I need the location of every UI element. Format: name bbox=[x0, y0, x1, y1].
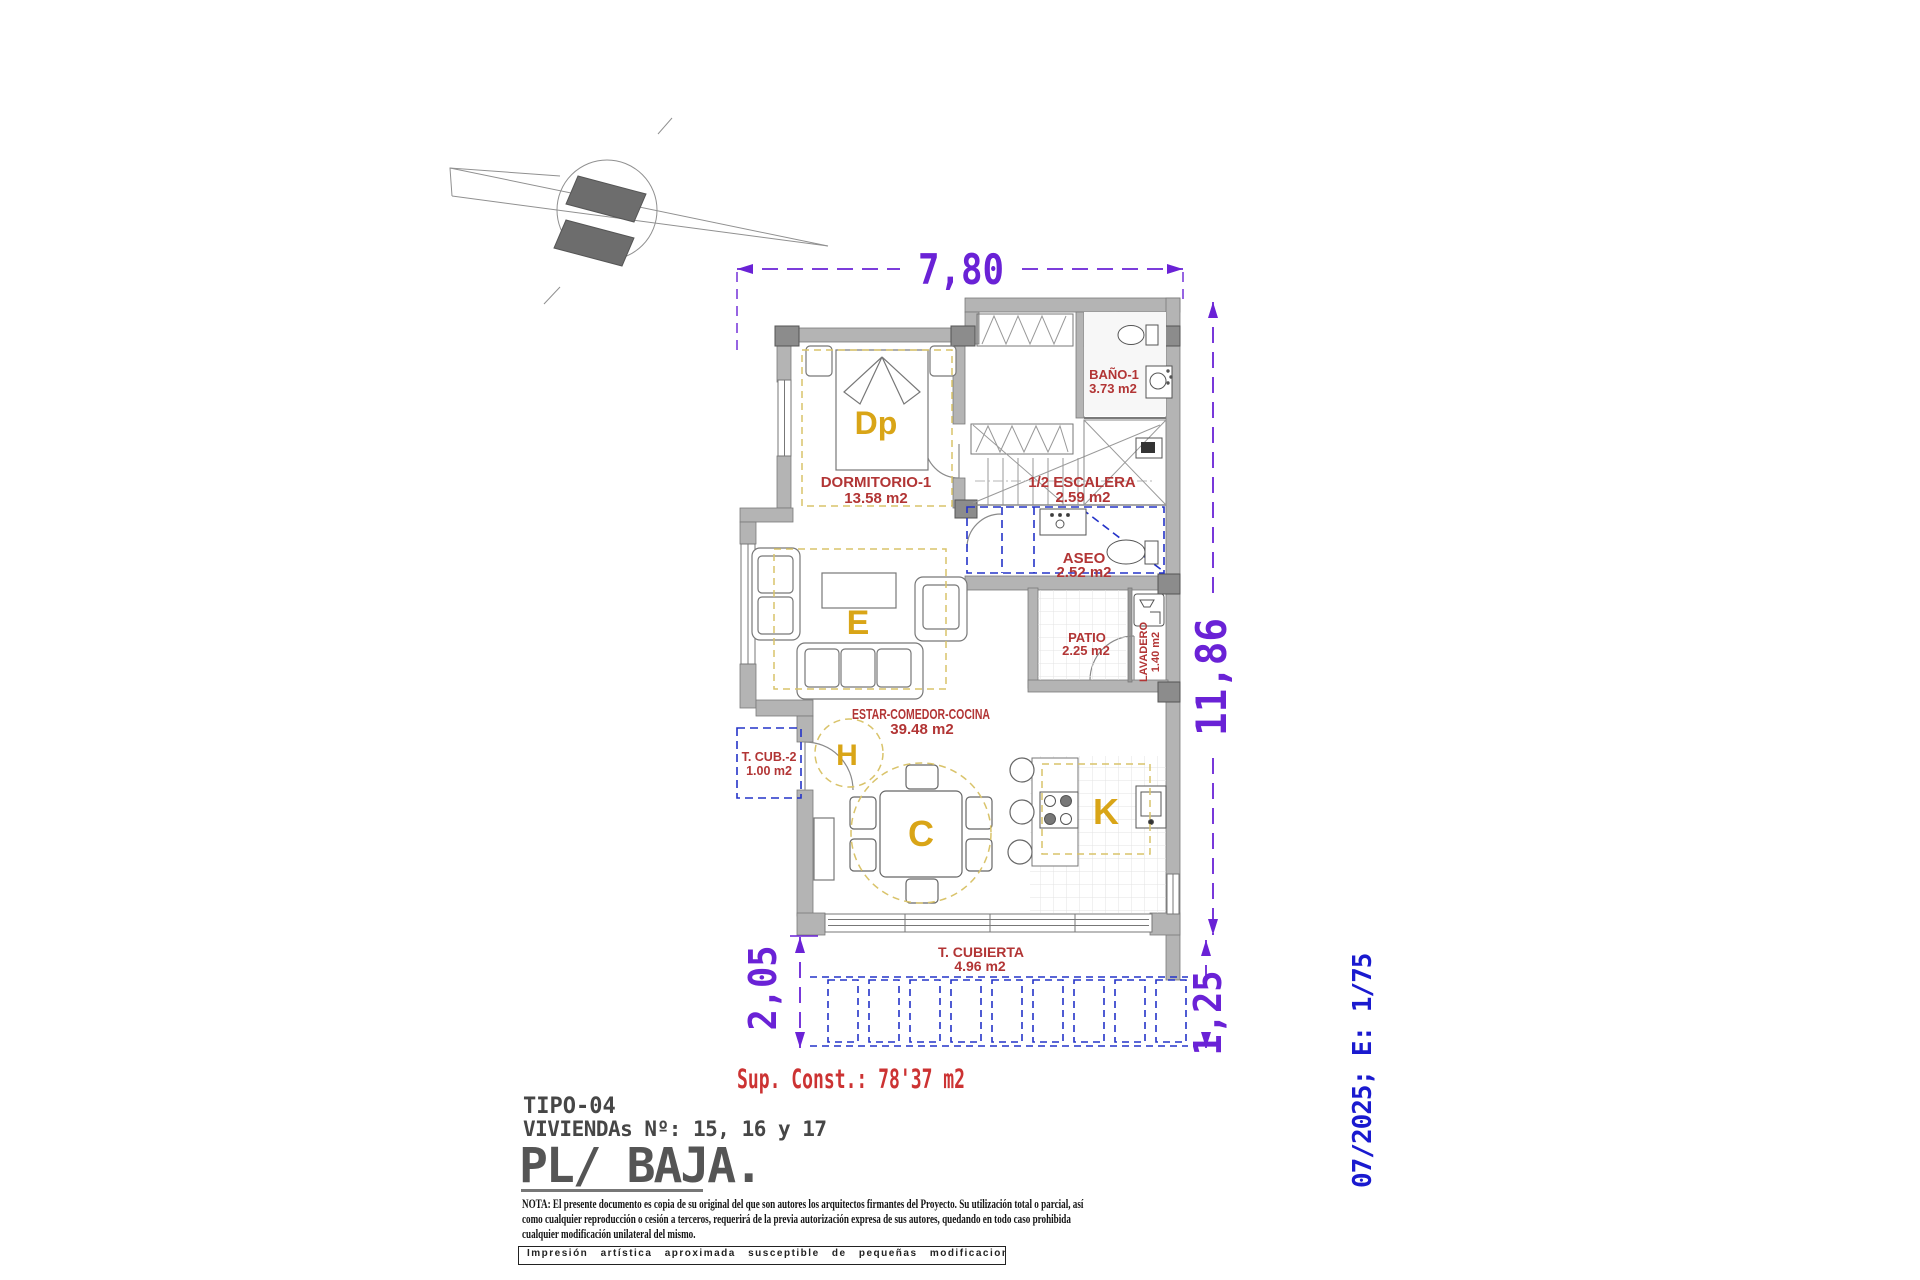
zone-k: K bbox=[1093, 791, 1119, 832]
nota-line-2: como cualquier reproducción o cesión a t… bbox=[522, 1211, 1083, 1226]
nota-line-3: cualquier modificación unilateral del mi… bbox=[522, 1226, 1083, 1241]
aseo-toilet-icon bbox=[1107, 540, 1158, 564]
stove-icon bbox=[1040, 792, 1078, 828]
toilet-icon bbox=[1118, 325, 1158, 345]
kitchen-sink-icon bbox=[1136, 786, 1166, 828]
coffee-table bbox=[822, 573, 896, 608]
armchair bbox=[915, 577, 967, 641]
sofa-two-seat bbox=[752, 548, 800, 640]
title-underline bbox=[521, 1189, 703, 1192]
sofa-three-seat bbox=[797, 643, 923, 699]
revision-date-scale: 07/2025; E: 1/75 bbox=[1348, 954, 1378, 1188]
label-patio-area: 2.25 m2 bbox=[1062, 643, 1110, 658]
label-estar-area: 39.48 m2 bbox=[890, 721, 953, 738]
label-aseo-area: 2.52 m2 bbox=[1056, 564, 1111, 581]
nota-block: NOTA: El presente documento es copia de … bbox=[522, 1196, 1324, 1241]
zone-dp: Dp bbox=[855, 405, 898, 441]
zone-e: E bbox=[847, 604, 870, 642]
label-lavadero-area: 1.40 m2 bbox=[1150, 632, 1162, 672]
dim-right: 11,86 bbox=[1187, 618, 1236, 736]
north-compass-icon bbox=[450, 118, 828, 304]
impresion-note: Impresión artística aproximada susceptib… bbox=[518, 1246, 1006, 1265]
washbasin-icon bbox=[1146, 366, 1172, 398]
dim-top: 7,80 bbox=[918, 245, 1004, 294]
label-dormitorio: DORMITORIO-1 bbox=[821, 474, 932, 491]
sup-const-label: Sup. Const.: 78'37 m2 bbox=[737, 1064, 965, 1095]
floor-plan-drawing: 7,80 11,86 2,05 1,25 DORMITORIO-1 13.58 … bbox=[0, 0, 1920, 1280]
label-tcubierta-area: 4.96 m2 bbox=[954, 958, 1006, 974]
label-bano: BAÑO-1 bbox=[1089, 367, 1139, 382]
title-planta: PL/ BAJA. bbox=[519, 1138, 761, 1194]
label-tcub2: T. CUB.-2 bbox=[742, 750, 797, 764]
aseo-basin-icon bbox=[1040, 509, 1086, 535]
bar-stools bbox=[1008, 758, 1034, 864]
label-lavadero: LAVADERO bbox=[1138, 622, 1150, 683]
label-bano-area: 3.73 m2 bbox=[1089, 381, 1137, 396]
zone-c: C bbox=[908, 813, 934, 854]
pergola bbox=[810, 977, 1188, 1046]
nota-line-1: NOTA: El presente documento es copia de … bbox=[522, 1196, 1083, 1211]
label-escalera-area: 2.59 m2 bbox=[1055, 489, 1110, 506]
dim-bottom-right: 1,25 bbox=[1186, 971, 1230, 1056]
title-tipo: TIPO-04 bbox=[523, 1094, 616, 1119]
dim-bottom-left: 2,05 bbox=[741, 946, 785, 1031]
zone-h: H bbox=[836, 739, 858, 772]
sideboard bbox=[814, 818, 834, 880]
label-dormitorio-area: 13.58 m2 bbox=[844, 490, 907, 507]
label-tcub2-area: 1.00 m2 bbox=[746, 764, 792, 778]
washer-icon bbox=[1134, 594, 1164, 626]
